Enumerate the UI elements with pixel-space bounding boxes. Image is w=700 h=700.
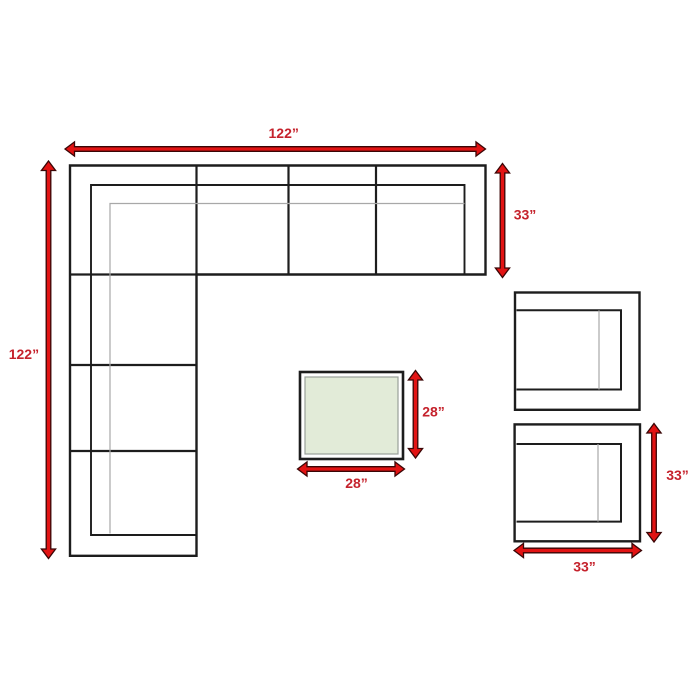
svg-text:33”: 33” (666, 467, 689, 483)
svg-text:33”: 33” (573, 559, 596, 575)
svg-text:122”: 122” (9, 346, 39, 362)
svg-text:28”: 28” (345, 475, 368, 491)
svg-text:28”: 28” (422, 404, 445, 420)
svg-text:33”: 33” (514, 207, 537, 223)
svg-text:122”: 122” (269, 125, 299, 141)
